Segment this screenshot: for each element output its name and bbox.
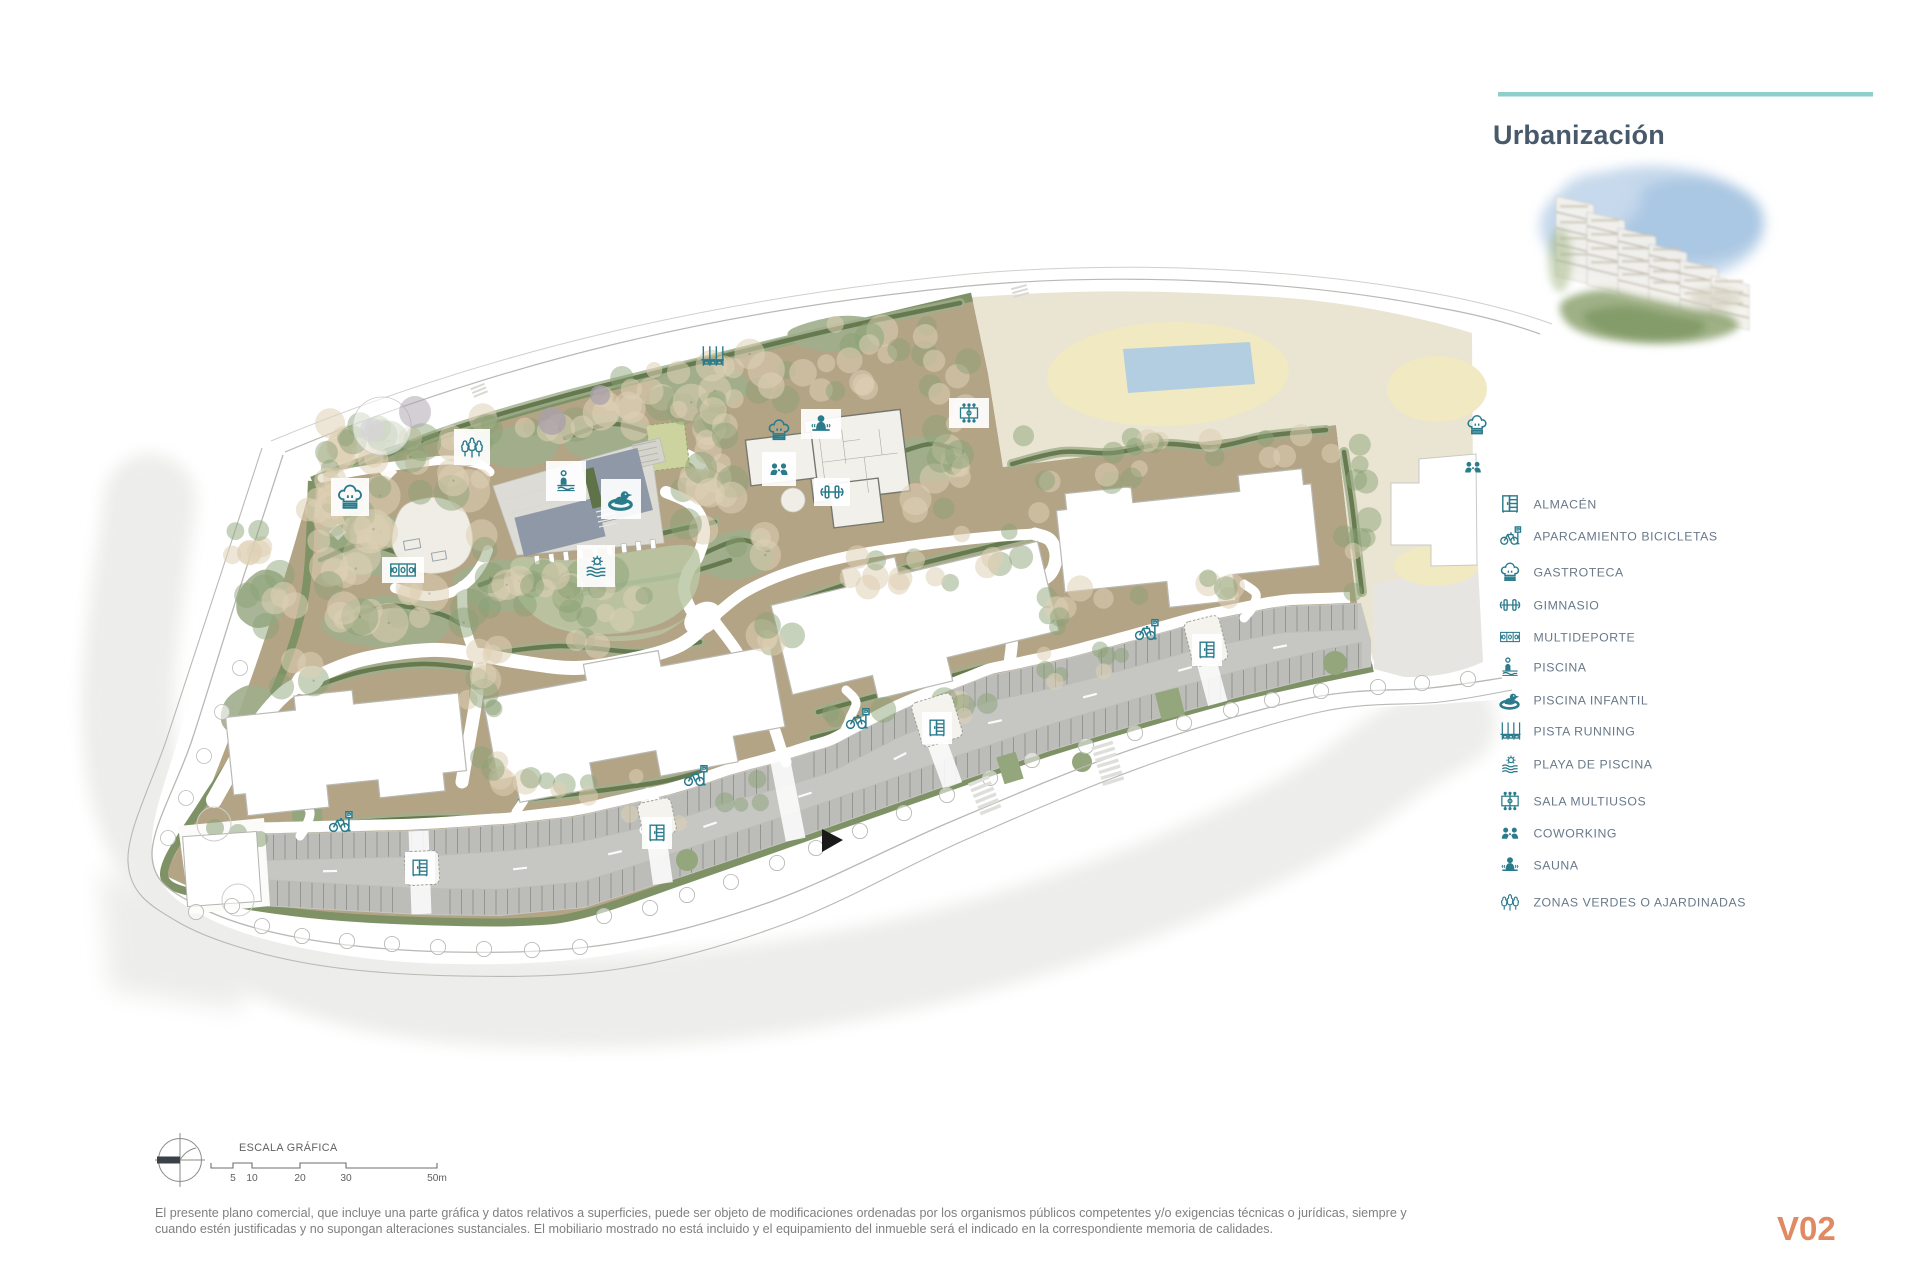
svg-text:PLAYA DE PISCINA: PLAYA DE PISCINA	[1534, 757, 1653, 771]
svg-text:SALA MULTIUSOS: SALA MULTIUSOS	[1534, 794, 1647, 808]
svg-text:30: 30	[340, 1173, 352, 1184]
svg-text:MULTIDEPORTE: MULTIDEPORTE	[1534, 630, 1636, 644]
svg-text:ALMACÉN: ALMACÉN	[1534, 496, 1597, 511]
svg-text:Urbanización: Urbanización	[1493, 120, 1665, 150]
svg-text:SAUNA: SAUNA	[1534, 858, 1579, 872]
svg-text:ZONAS VERDES O AJARDINADAS: ZONAS VERDES O AJARDINADAS	[1534, 895, 1746, 909]
svg-text:50m: 50m	[427, 1173, 447, 1184]
svg-text:ESCALA GRÁFICA: ESCALA GRÁFICA	[239, 1141, 338, 1154]
svg-text:cuando estén justificadas y no: cuando estén justificadas y no supongan …	[155, 1222, 1273, 1236]
svg-text:10: 10	[246, 1173, 258, 1184]
svg-text:GIMNASIO: GIMNASIO	[1534, 598, 1600, 612]
svg-text:PISTA RUNNING: PISTA RUNNING	[1534, 724, 1636, 738]
svg-text:PISCINA INFANTIL: PISCINA INFANTIL	[1534, 693, 1649, 707]
svg-text:El presente plano comercial, q: El presente plano comercial, que incluye…	[155, 1206, 1407, 1220]
svg-text:PISCINA: PISCINA	[1534, 660, 1587, 674]
svg-text:APARCAMIENTO BICICLETAS: APARCAMIENTO BICICLETAS	[1534, 529, 1718, 543]
svg-text:V02: V02	[1777, 1210, 1836, 1247]
svg-text:COWORKING: COWORKING	[1534, 826, 1618, 840]
svg-text:GASTROTECA: GASTROTECA	[1534, 565, 1624, 579]
svg-text:5: 5	[230, 1173, 236, 1184]
svg-text:20: 20	[294, 1173, 306, 1184]
